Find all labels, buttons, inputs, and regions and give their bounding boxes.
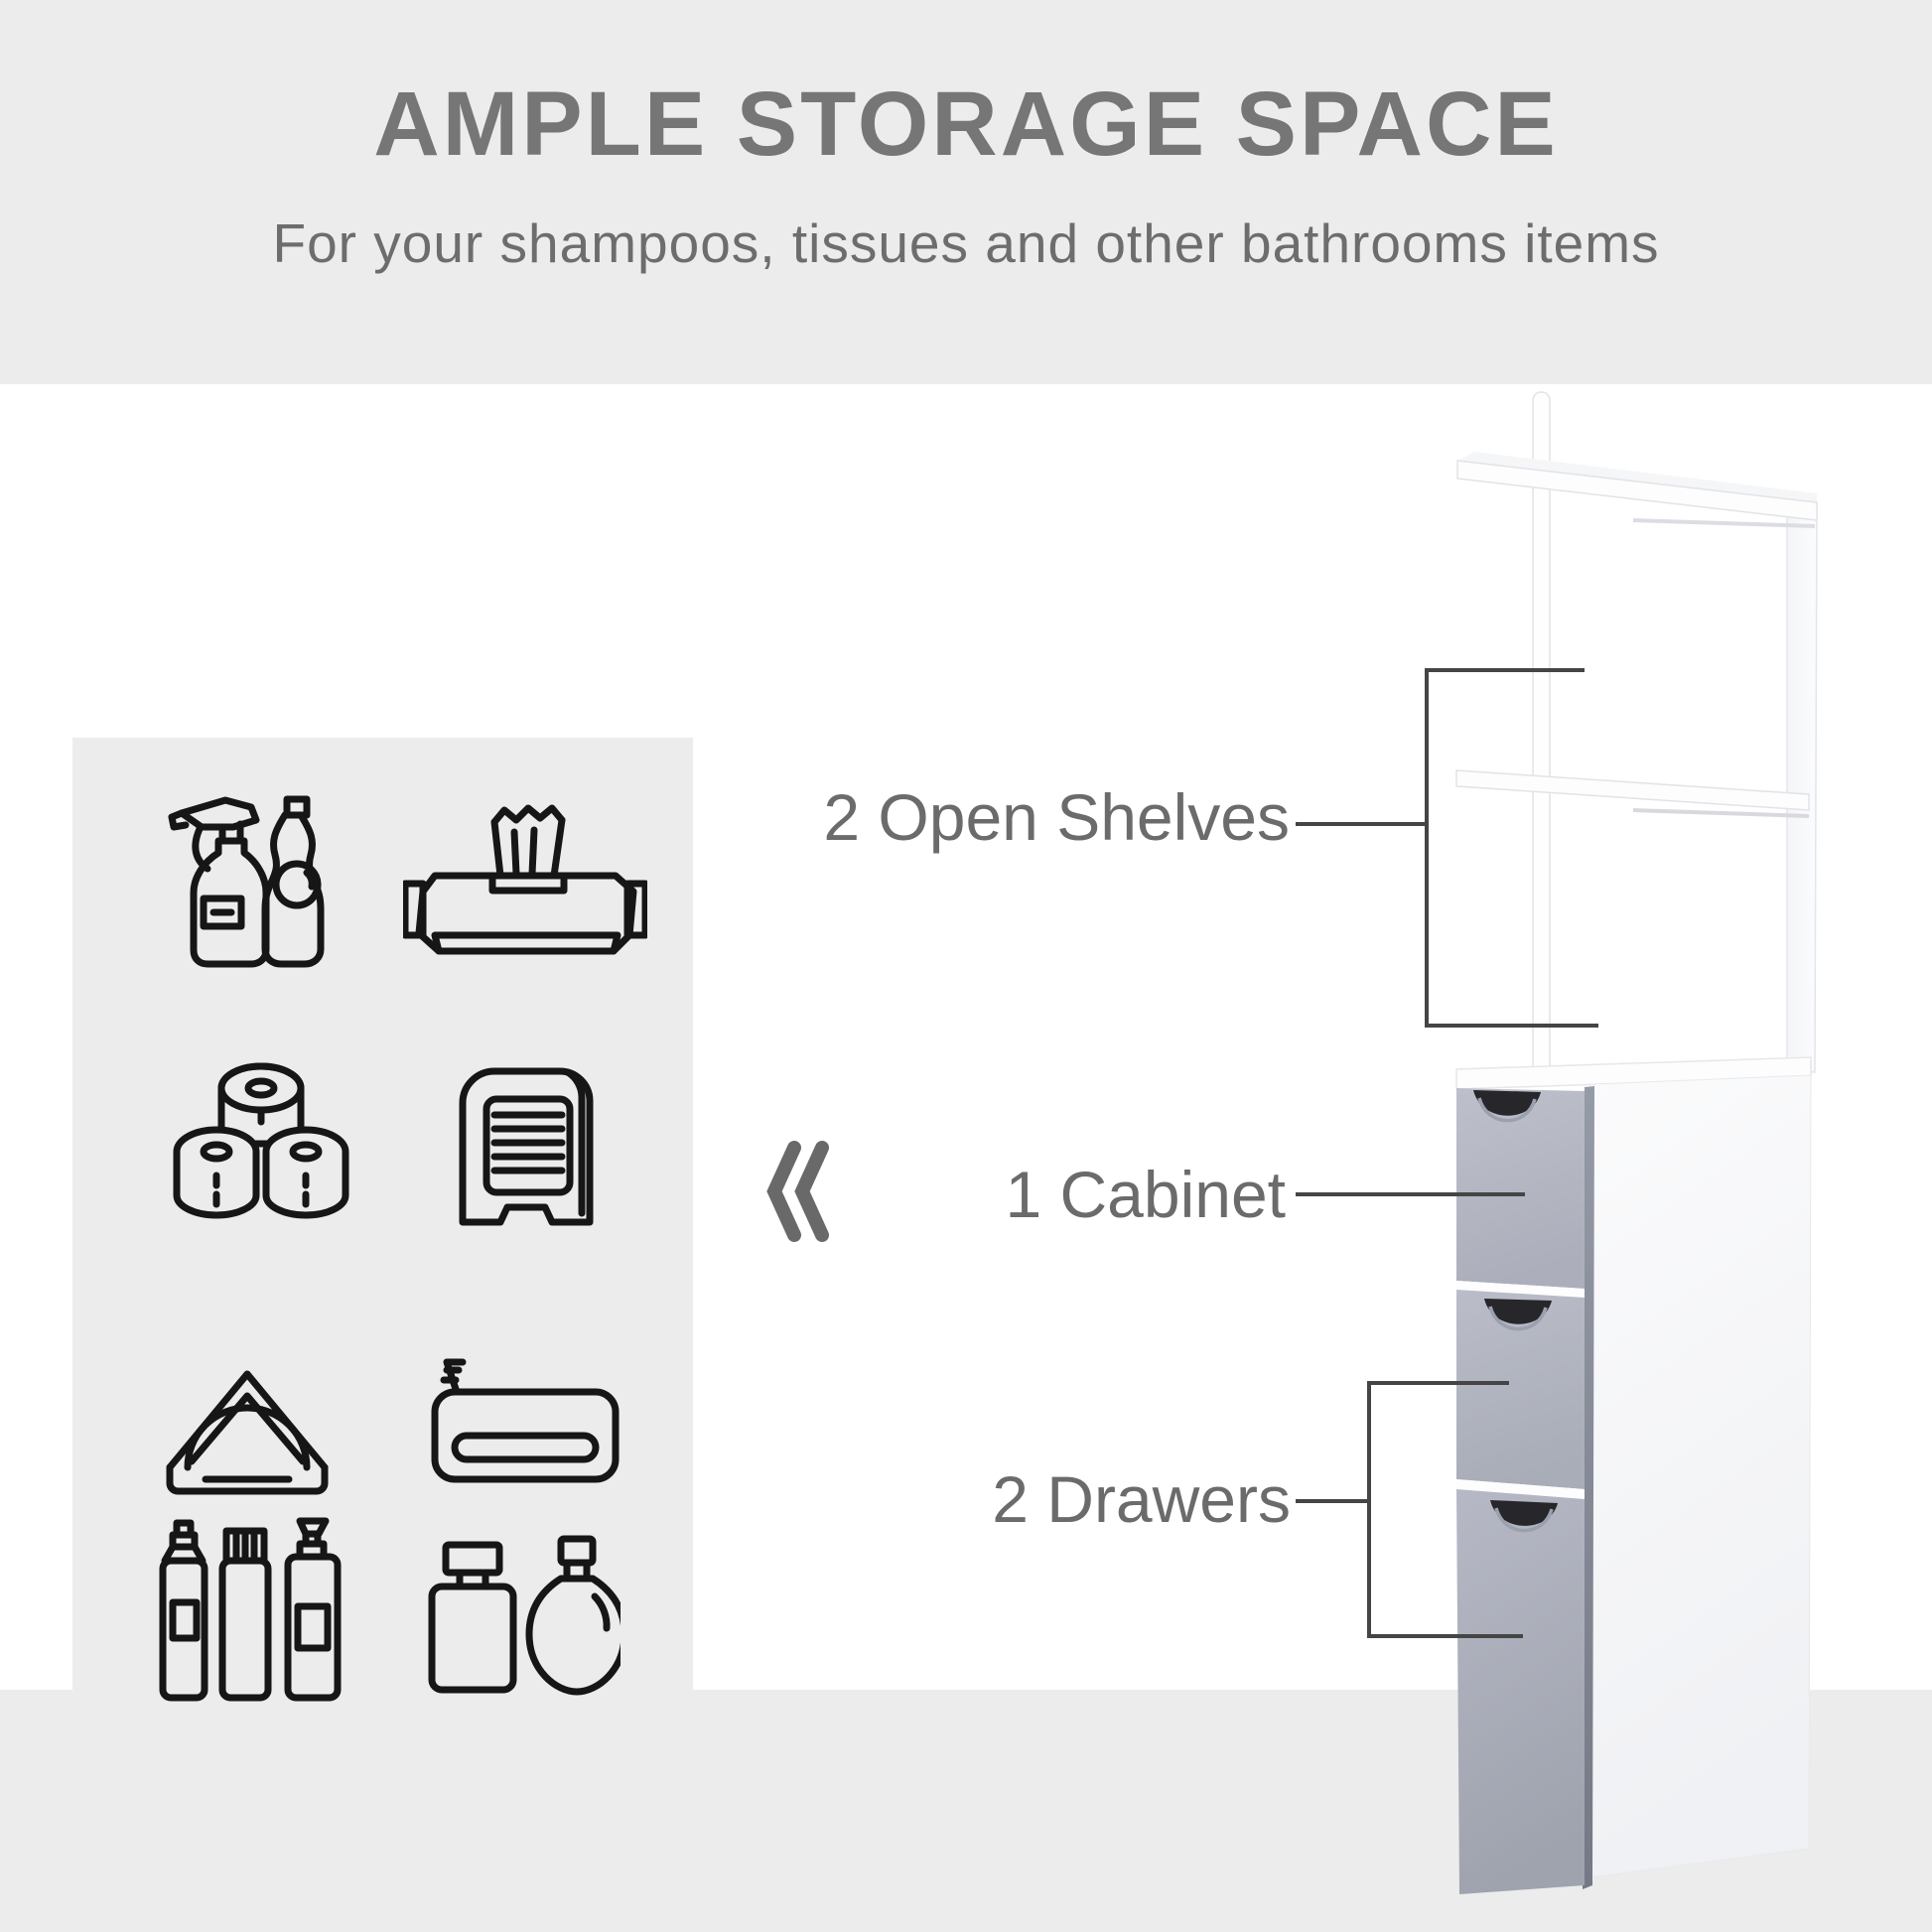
open-shelves-label: 2 Open Shelves [823,781,1290,853]
infographic-page: AMPLE STORAGE SPACE For your shampoos, t… [0,0,1932,1932]
drawers-bracket-bottom-arm [1367,1634,1523,1638]
perfume-bottles-icon [410,1531,621,1702]
cabinet-label: 1 Cabinet [1005,1159,1286,1230]
paper-towel-dispenser-icon [435,1045,621,1232]
wet-wipes-icon [403,802,647,969]
drawers-connector-line [1296,1499,1371,1503]
toilet-paper-rolls-icon [162,1048,360,1235]
toiletry-bottles-icon [145,1515,347,1706]
page-title: AMPLE STORAGE SPACE [0,69,1932,179]
middle-shelf [1456,770,1809,810]
shelves-connector-line [1296,822,1427,826]
napkin-holder-icon [162,1356,333,1503]
shelf-side-panel [1787,498,1817,1072]
shelf-support-pole [1533,392,1550,1073]
lower-drawer [1456,1489,1585,1894]
drawers-bracket-vertical [1367,1381,1371,1638]
cleaning-bottles-icon [162,787,341,981]
header-band [0,0,1932,384]
shelves-bracket-top-arm [1425,668,1585,672]
drawers-bracket-top-arm [1367,1381,1509,1385]
page-subtitle: For your shampoos, tissues and other bat… [0,210,1932,276]
shelves-bracket-vertical [1425,668,1429,1028]
double-chevron-icon [764,1140,834,1243]
shelves-bracket-bottom-arm [1425,1024,1598,1028]
folded-towel-icon [417,1356,633,1493]
cabinet-connector-line [1296,1192,1525,1196]
drawers-label: 2 Drawers [992,1463,1291,1535]
cabinet-illustration [1385,382,1862,1916]
